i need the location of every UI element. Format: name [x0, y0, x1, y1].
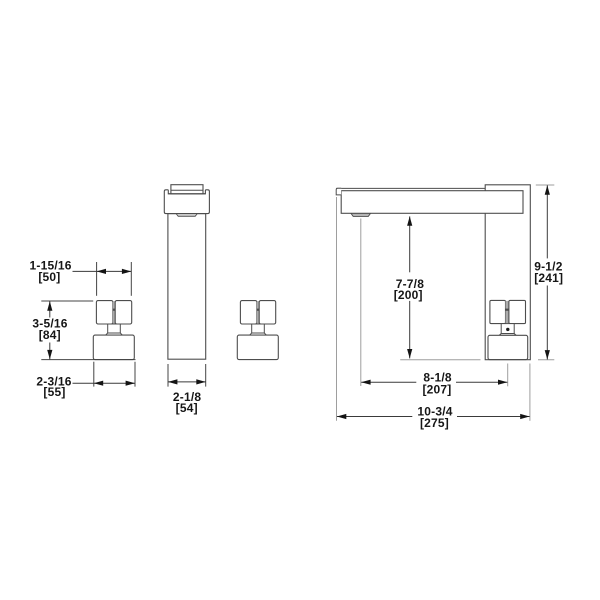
svg-text:[207]: [207] [422, 383, 451, 397]
svg-text:[200]: [200] [394, 288, 423, 302]
svg-text:[54]: [54] [176, 401, 198, 415]
svg-text:[275]: [275] [420, 416, 449, 430]
svg-text:[241]: [241] [534, 271, 563, 285]
svg-text:[50]: [50] [38, 270, 60, 284]
svg-text:[55]: [55] [43, 385, 65, 399]
svg-text:[84]: [84] [39, 328, 61, 342]
